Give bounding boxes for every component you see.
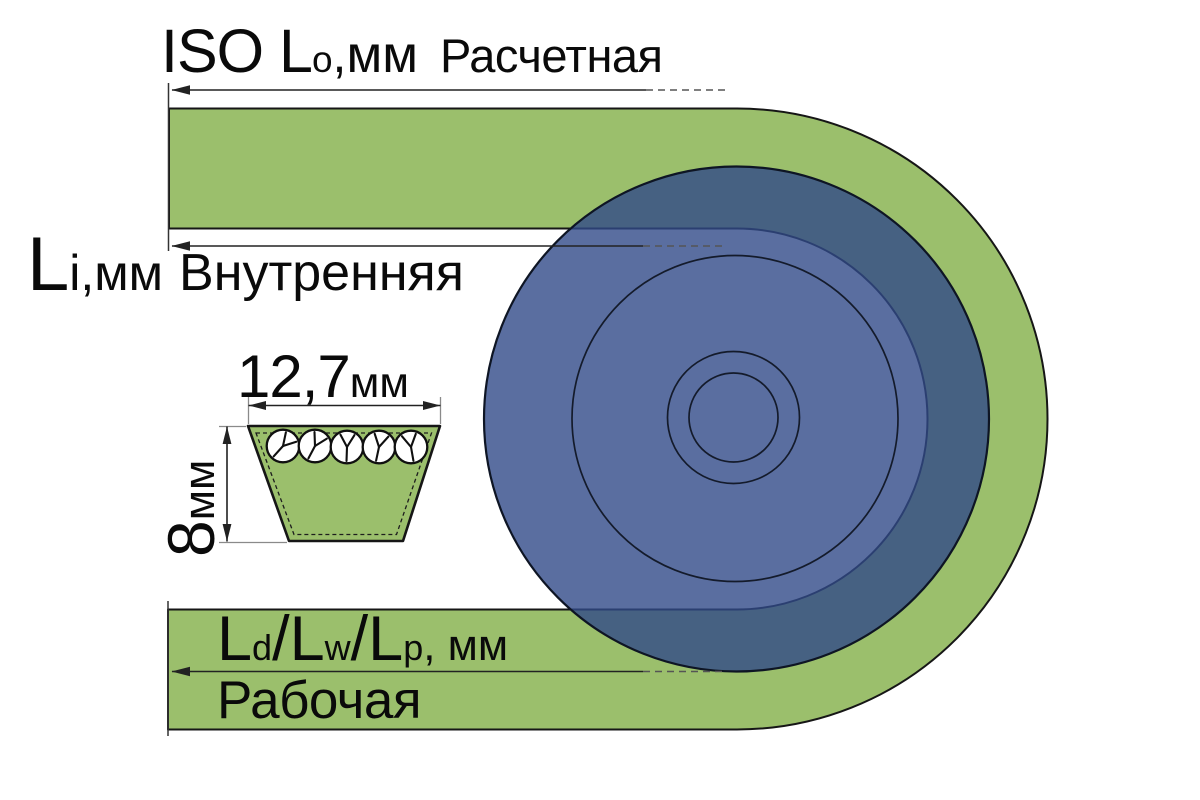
- pitch-subscript-3: p: [403, 630, 423, 666]
- cord-strand-icon: [267, 430, 300, 463]
- height-unit: мм: [178, 460, 222, 521]
- outer-length-label: ISO Lo,ммРасчетная: [161, 21, 663, 82]
- pitch-length-title: Рабочая: [217, 674, 421, 727]
- pitch-subscript-1: d: [252, 630, 272, 666]
- width-label: 12,7мм: [237, 347, 409, 407]
- outer-length-title: Расчетная: [440, 32, 663, 79]
- pitch-title-text: Рабочая: [217, 674, 421, 727]
- outer-length-unit: мм: [346, 29, 418, 81]
- inner-length-comma: ,: [80, 248, 94, 298]
- pitch-unit: , мм: [423, 624, 508, 668]
- cord-strand-icon: [363, 431, 396, 464]
- height-value: 8: [158, 520, 224, 557]
- pitch-symbol-2: L: [290, 608, 325, 671]
- outer-length-comma: ,: [333, 30, 347, 80]
- width-unit: мм: [350, 362, 409, 405]
- pitch-symbol-3: L: [368, 608, 403, 671]
- pitch-length-label: Ld/Lw/Lp, мм: [217, 608, 508, 671]
- belt-pulley-diagram: [0, 0, 1200, 800]
- cord-strand-icon: [331, 431, 364, 464]
- outer-length-symbol: ISO L: [161, 21, 312, 82]
- inner-length-unit: мм: [94, 248, 163, 298]
- cord-strand-icon: [395, 431, 428, 464]
- pitch-subscript-2: w: [325, 630, 351, 666]
- width-arrow-right-icon: [423, 401, 441, 410]
- cord-strands: [267, 430, 428, 464]
- diagram-canvas: ISO Lo,ммРасчетная Li,ммВнутренняя 12,7м…: [0, 0, 1200, 800]
- inner-length-label: Li,ммВнутренняя: [27, 227, 464, 303]
- outer-length-subscript: o: [312, 41, 333, 78]
- pitch-separator-1: /: [272, 608, 290, 671]
- pitch-separator-2: /: [351, 608, 369, 671]
- height-arrow-top-icon: [223, 427, 232, 445]
- width-value: 12,7: [237, 347, 350, 407]
- inner-length-title: Внутренняя: [179, 247, 464, 299]
- inner-length-symbol: L: [27, 227, 69, 303]
- pulley-disc: [484, 167, 989, 672]
- height-label: 8мм: [158, 460, 224, 557]
- inner-length-subscript: i: [69, 248, 80, 298]
- outer-length-arrow-icon: [172, 85, 191, 95]
- pitch-symbol-1: L: [217, 608, 252, 671]
- cord-strand-icon: [299, 430, 332, 463]
